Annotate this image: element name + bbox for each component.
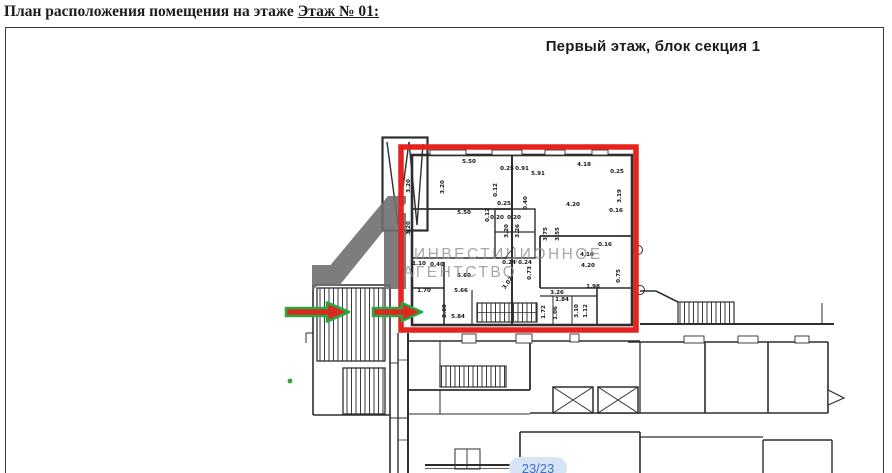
dimension-label: 0.12: [493, 183, 499, 197]
dimension-label: 3.20: [440, 180, 446, 194]
dimension-label: 0.25: [610, 169, 624, 175]
stairs-hatch-below-box: [440, 366, 506, 387]
dimension-label: 1.70: [417, 288, 431, 294]
dimension-label: 3.19: [617, 189, 623, 203]
dimension-label: 3.20: [504, 224, 510, 238]
dimension-label: 0.25: [500, 166, 514, 172]
dimension-label: 4.20: [581, 263, 595, 269]
dimension-label: 0.20: [507, 215, 521, 221]
dimension-label: 3.26: [550, 290, 564, 296]
dimension-label: 0.16: [609, 208, 623, 214]
dimension-label: 5.66: [454, 288, 468, 294]
dimension-label: 0.91: [515, 166, 529, 172]
dimension-label: 1.98: [586, 284, 600, 290]
dimension-label: 3.75: [543, 227, 549, 241]
stairs-hatch-left-upper: [317, 288, 385, 361]
dimension-label: 3.55: [555, 227, 561, 241]
dimension-label: 0.75: [616, 269, 622, 283]
stairs-hatch-left-lower: [343, 368, 385, 414]
floor-plan-drawing: 5.500.250.915.914.180.253.203.200.123.19…: [0, 0, 892, 473]
dimension-label: 5.50: [457, 210, 471, 216]
watermark-line2: АГЕНТСТВО: [403, 264, 517, 281]
dimension-label: 2.60: [442, 304, 448, 318]
dimension-label: 1.12: [583, 304, 589, 318]
dimension-label: 0.12: [485, 208, 491, 222]
dimension-label: 3.10: [574, 304, 580, 318]
dimension-label: 5.91: [531, 171, 545, 177]
dimension-label: 3.20: [406, 179, 412, 193]
dimension-label: 0.25: [497, 201, 511, 207]
dimension-label: 3.20: [406, 221, 412, 235]
page-indicator-text: 23/23: [522, 461, 555, 473]
dimension-label: 4.18: [577, 162, 591, 168]
door-notch: [828, 390, 844, 405]
elevator-shaft-icon: [553, 387, 638, 413]
dimension-label: 1.84: [555, 297, 569, 303]
page-indicator-badge[interactable]: 23/23: [509, 457, 567, 473]
dimension-label: 5.84: [451, 314, 465, 320]
investment-agency-logo-icon: [312, 196, 406, 291]
dimension-label: 0.20: [490, 215, 504, 221]
dimension-label: 3.26: [515, 224, 521, 238]
dimension-label: 0.73: [527, 266, 533, 280]
document-page: План расположения помещения на этажеЭтаж…: [0, 0, 892, 473]
dimension-label: 0.40: [523, 196, 529, 210]
dimension-label: 5.50: [462, 159, 476, 165]
watermark-line1: ИНВЕСТИЦИОННОЕ: [414, 246, 603, 263]
dimension-label: 1.72: [541, 305, 547, 319]
stairs-hatch-right: [678, 302, 734, 324]
dimension-label: 1.06: [553, 306, 559, 320]
green-dot-marker: [288, 379, 293, 384]
dimension-label: 4.20: [566, 202, 580, 208]
